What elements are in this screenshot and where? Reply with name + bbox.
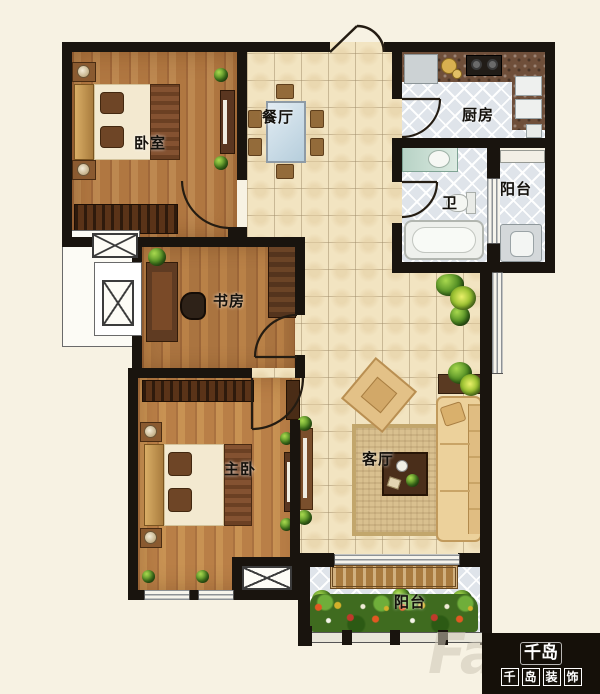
living-label: 客厅: [362, 448, 394, 469]
coffee-table-plate: [396, 460, 408, 472]
wall: [128, 590, 144, 600]
wall: [237, 42, 247, 180]
dining-chair: [310, 138, 324, 156]
study-label: 书房: [213, 290, 245, 311]
plant: [214, 68, 228, 82]
living-tv: [303, 438, 307, 498]
logo-char: 装: [543, 668, 561, 686]
master-window: [198, 590, 234, 600]
wall: [295, 355, 305, 378]
study-desk-panel: [152, 272, 172, 330]
bedroom-tv: [223, 100, 227, 144]
master-label: 主卧: [224, 458, 256, 479]
rail-post: [342, 630, 352, 645]
dining-label: 餐厅: [262, 106, 294, 127]
study-bookshelf: [268, 242, 296, 318]
wall: [487, 242, 500, 264]
stove-burner: [471, 59, 482, 70]
master-bed-headboard: [144, 444, 164, 526]
company-logo: 千岛 千 岛 装 饰: [482, 633, 600, 694]
dining-chair: [276, 164, 294, 179]
sofa-seatline: [440, 490, 470, 492]
rail-post: [298, 626, 312, 646]
wall: [384, 42, 555, 52]
wall: [392, 52, 402, 99]
wall: [392, 138, 555, 148]
dining-chair: [276, 84, 294, 99]
kitchen-fridge: [404, 54, 438, 84]
dining-chair: [248, 138, 262, 156]
wall: [545, 42, 555, 273]
balcony-rug: [330, 565, 458, 589]
kitchen-item: [526, 124, 542, 138]
living-side-window: [492, 272, 503, 374]
wall: [295, 247, 305, 315]
bedroom-lamp: [77, 65, 90, 78]
wall: [392, 262, 555, 273]
right-balcony-label: 阳台: [500, 178, 532, 199]
elevator-shaft: [102, 280, 134, 326]
master-cabinet: [286, 380, 300, 420]
study-chair: [180, 292, 206, 320]
logo-char: 千: [501, 668, 519, 686]
flue-shaft: [242, 566, 292, 590]
master-blanket: [224, 444, 252, 526]
bathroom-sink: [428, 150, 450, 168]
bedroom-bed-headboard: [74, 84, 94, 160]
plant: [196, 570, 209, 583]
master-wardrobe: [142, 380, 254, 402]
bedroom-pillow: [100, 92, 124, 114]
master-pillow: [168, 452, 192, 476]
floor-plan: 卧室 餐厅 厨房 卫 阳台 书房 主卧 客厅 阳台 Fa 千岛 千 岛 装 饰: [0, 0, 600, 694]
wall: [128, 368, 138, 600]
wall: [298, 553, 334, 567]
coffee-table-plant: [406, 474, 419, 487]
kitchen-sink: [515, 76, 542, 96]
logo-name: 千 岛 装 饰: [501, 668, 582, 686]
bedroom-lamp: [77, 163, 90, 176]
bedroom-pillow: [100, 126, 124, 148]
plant: [142, 570, 155, 583]
logo-char: 岛: [522, 668, 540, 686]
master-lamp: [144, 531, 157, 544]
dining-chair: [248, 110, 262, 128]
wall: [290, 420, 300, 557]
wall: [487, 148, 500, 178]
palm-plant: [450, 286, 476, 310]
logo-char: 饰: [564, 668, 582, 686]
bottom-balcony-label: 阳台: [394, 591, 426, 612]
plant: [148, 248, 166, 266]
washing-machine-door: [510, 231, 534, 257]
wall: [62, 42, 72, 247]
logo-seal-mark: 千岛: [520, 642, 562, 665]
kitchen-label: 厨房: [462, 104, 494, 125]
master-pillow: [168, 488, 192, 512]
stove-burner: [487, 59, 498, 70]
kitchen-plate: [452, 69, 462, 79]
bathtub-basin: [412, 227, 476, 253]
wall: [458, 553, 484, 567]
balcony-shelf: [500, 150, 545, 163]
wall: [480, 262, 492, 645]
palm-plant: [460, 374, 482, 396]
dining-chair: [310, 110, 324, 128]
wall: [132, 368, 252, 378]
kitchen-sink: [515, 99, 542, 119]
master-window: [144, 590, 190, 600]
wall: [62, 42, 330, 52]
master-lamp: [144, 425, 157, 438]
rail-post: [390, 630, 400, 645]
plant: [214, 156, 228, 170]
sofa-seatline: [440, 443, 470, 445]
bathroom-balcony-window: [487, 178, 500, 244]
elevator-shaft: [92, 233, 138, 258]
bathroom-label: 卫: [442, 192, 458, 213]
bedroom-label: 卧室: [134, 132, 166, 153]
living-balcony-window: [334, 554, 460, 565]
